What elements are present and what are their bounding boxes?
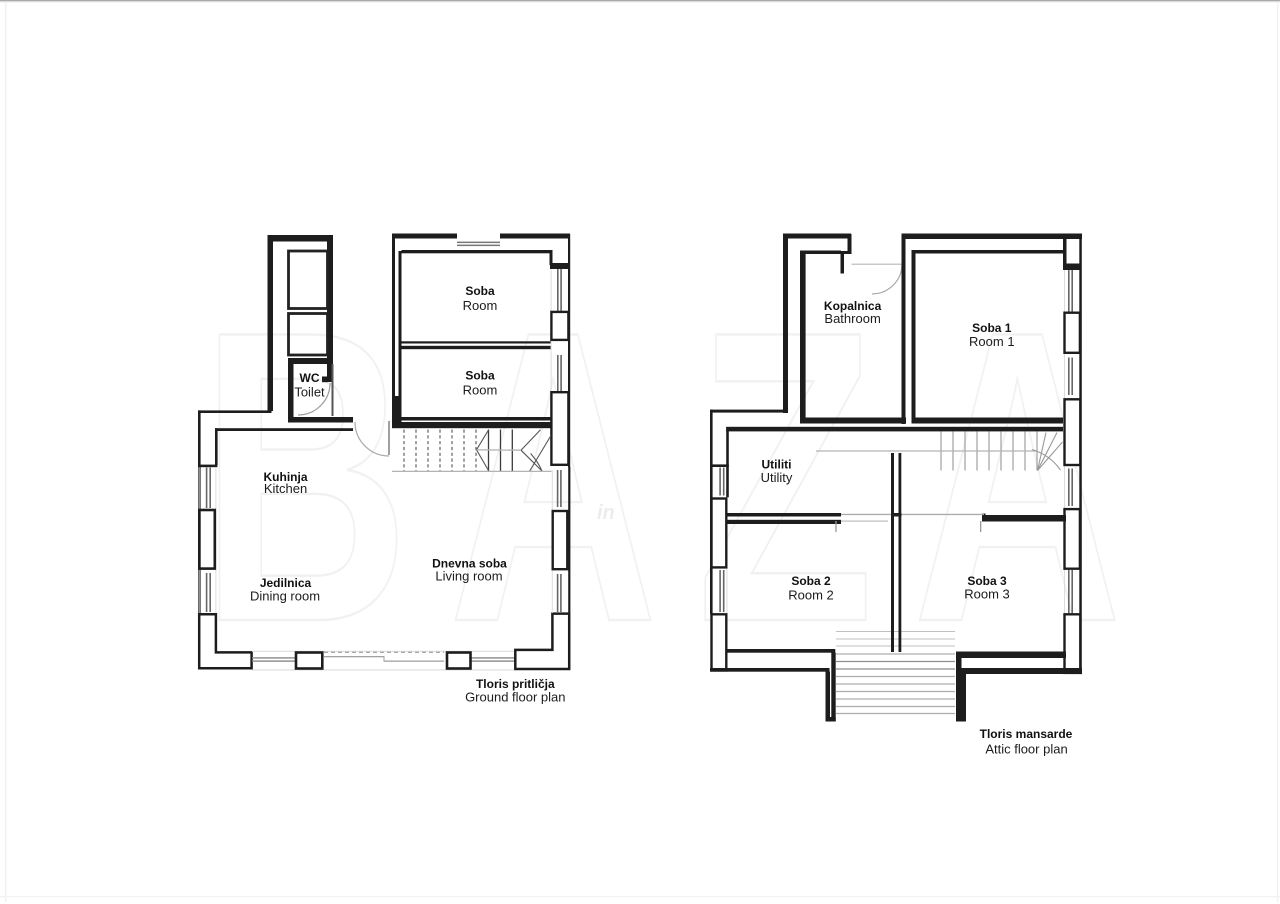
svg-text:Room 2: Room 2 — [788, 588, 834, 603]
svg-text:Bathroom: Bathroom — [824, 311, 880, 326]
svg-text:Toilet: Toilet — [294, 385, 325, 400]
svg-text:Room 1: Room 1 — [969, 334, 1015, 349]
svg-text:Ground floor plan: Ground floor plan — [465, 689, 565, 704]
svg-text:Room: Room — [463, 298, 498, 313]
svg-text:Soba: Soba — [465, 369, 495, 383]
svg-text:Dining room: Dining room — [250, 589, 320, 604]
svg-text:Utility: Utility — [761, 470, 793, 485]
svg-text:WC: WC — [300, 371, 320, 385]
svg-text:BAZA: BAZA — [200, 245, 1161, 708]
svg-text:Attic floor plan: Attic floor plan — [985, 742, 1067, 757]
svg-text:Kitchen: Kitchen — [264, 481, 307, 496]
svg-text:in: in — [597, 502, 615, 524]
svg-text:Tloris mansarde: Tloris mansarde — [980, 727, 1073, 741]
svg-text:Room 3: Room 3 — [964, 586, 1010, 601]
svg-text:Soba 2: Soba 2 — [791, 574, 831, 588]
svg-text:Soba: Soba — [465, 284, 495, 298]
svg-text:Room: Room — [463, 382, 498, 397]
svg-text:Soba 1: Soba 1 — [972, 321, 1012, 335]
svg-text:Living room: Living room — [435, 569, 502, 584]
